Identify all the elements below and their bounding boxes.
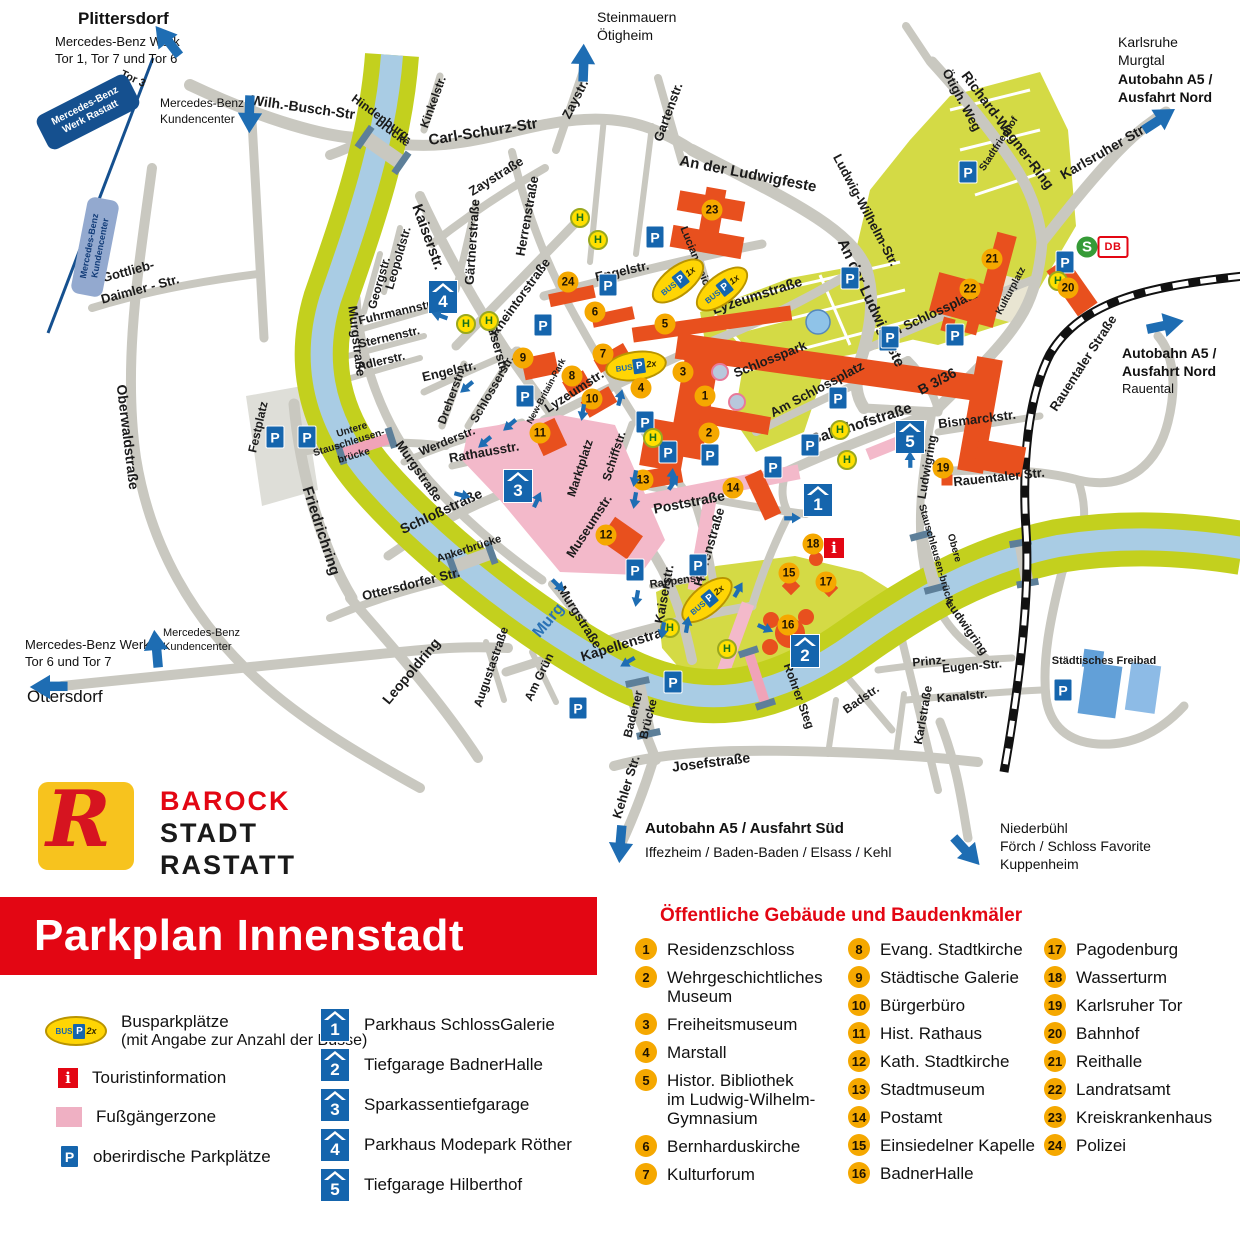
poi-label: Städtische Galerie	[880, 968, 1019, 987]
legend-busparkplaetze: BUS P 2x Busparkplätze (mit Angabe zur A…	[45, 1012, 367, 1050]
garage-legend-label: Tiefgarage BadnerHalle	[364, 1055, 543, 1075]
legend-fussgaengerzone: Fußgängerzone	[56, 1107, 216, 1127]
poi-marker: 21	[1044, 1050, 1066, 1072]
map-marker-17: 17	[816, 572, 837, 593]
poi-marker: 10	[848, 994, 870, 1016]
bus-stop-icon: H	[717, 639, 737, 659]
parking-garage-icon: 5	[895, 420, 925, 454]
map: Wilh.-Busch-StrCarl-Schurz-StrZaystr.Gar…	[0, 0, 1240, 890]
poi-marker: 3	[635, 1013, 657, 1035]
bus-stop-icon: H	[588, 230, 608, 250]
poi-marker: 20	[1044, 1022, 1066, 1044]
bus-stop-icon: H	[830, 420, 850, 440]
surface-parking-icon: P	[659, 441, 678, 464]
parking-garage-icon: 2	[790, 634, 820, 668]
surface-parking-icon: P	[534, 314, 553, 337]
map-marker-15: 15	[779, 563, 800, 584]
surface-parking-icon: P	[841, 267, 860, 290]
garage-legend-label: Parkhaus Modepark Röther	[364, 1135, 572, 1155]
surface-parking-icon: P	[569, 697, 588, 720]
surface-parking-icon: P	[298, 426, 317, 449]
poi-item-24: 24Polizei	[1044, 1136, 1126, 1156]
poi-label: Reithalle	[1076, 1052, 1142, 1071]
destination-label: Iffezheim / Baden-Baden / Elsass / Kehl	[645, 843, 891, 861]
poi-marker: 6	[635, 1135, 657, 1157]
poi-marker: 16	[848, 1162, 870, 1184]
db-icon: DB	[1098, 236, 1129, 258]
poi-marker: 8	[848, 938, 870, 960]
poi-marker: 12	[848, 1050, 870, 1072]
map-marker-24: 24	[558, 272, 579, 293]
poi-marker: 17	[1044, 938, 1066, 960]
poi-item-22: 22Landratsamt	[1044, 1080, 1171, 1100]
garage-legend-item-5: 5Tiefgarage Hilberthof	[320, 1168, 522, 1202]
title-band: Parkplan Innenstadt	[0, 897, 597, 975]
map-marker-3: 3	[673, 362, 694, 383]
parking-garage-icon: 3	[503, 469, 533, 503]
surface-parking-icon: P	[516, 385, 535, 408]
legend-ped-label: Fußgängerzone	[96, 1107, 216, 1127]
surface-parking-icon: P	[626, 559, 645, 582]
poi-item-8: 8Evang. Stadtkirche	[848, 940, 1023, 960]
poi-item-7: 7Kulturforum	[635, 1165, 755, 1185]
poi-marker: 15	[848, 1134, 870, 1156]
destination-label: Rauental	[1122, 381, 1174, 398]
bus-stop-icon: H	[456, 314, 476, 334]
pedestrian-zone-swatch	[56, 1107, 82, 1127]
poi-label: Landratsamt	[1076, 1080, 1171, 1099]
surface-parking-icon: P	[764, 456, 783, 479]
tourist-info-icon: i	[824, 538, 844, 558]
street-label: Städtisches Freibad	[1052, 655, 1157, 667]
poi-label: Bernharduskirche	[667, 1137, 800, 1156]
garage-legend-label: Parkhaus SchlossGalerie	[364, 1015, 555, 1035]
poi-label: Kreiskrankenhaus	[1076, 1108, 1212, 1127]
poi-marker: 19	[1044, 994, 1066, 1016]
surface-parking-icon: P	[60, 1145, 79, 1168]
garage-legend-item-2: 2Tiefgarage BadnerHalle	[320, 1048, 543, 1082]
logo-line-rastatt: RASTATT	[160, 852, 296, 879]
poi-item-4: 4Marstall	[635, 1043, 727, 1063]
poi-marker: 11	[848, 1022, 870, 1044]
map-marker-6: 6	[585, 302, 606, 323]
poi-item-13: 13Stadtmuseum	[848, 1080, 985, 1100]
poi-marker: 2	[635, 966, 657, 988]
poi-marker: 14	[848, 1106, 870, 1128]
poi-marker: 23	[1044, 1106, 1066, 1128]
poi-item-17: 17Pagodenburg	[1044, 940, 1178, 960]
map-marker-22: 22	[960, 279, 981, 300]
poi-item-23: 23Kreiskrankenhaus	[1044, 1108, 1212, 1128]
poi-item-6: 6Bernharduskirche	[635, 1137, 800, 1157]
poi-item-18: 18Wasserturm	[1044, 968, 1167, 988]
map-marker-5: 5	[655, 314, 676, 335]
garage-legend-item-4: 4Parkhaus Modepark Röther	[320, 1128, 572, 1162]
legend-info-label: Touristinformation	[92, 1068, 226, 1088]
destination-label: Mercedes-Benz Kundencenter	[160, 96, 244, 127]
map-marker-16: 16	[778, 615, 799, 636]
surface-parking-icon: P	[1054, 679, 1073, 702]
poi-label: Wasserturm	[1076, 968, 1167, 987]
poi-label: Hist. Rathaus	[880, 1024, 982, 1043]
poi-item-1: 1Residenzschloss	[635, 940, 795, 960]
map-marker-20: 20	[1058, 278, 1079, 299]
surface-parking-icon: P	[959, 161, 978, 184]
poi-label: Bürgerbüro	[880, 996, 965, 1015]
surface-parking-icon: P	[829, 387, 848, 410]
poi-item-12: 12Kath. Stadtkirche	[848, 1052, 1009, 1072]
poi-item-20: 20Bahnhof	[1044, 1024, 1139, 1044]
bus-stop-icon: H	[570, 208, 590, 228]
garage-legend-label: Sparkassentiefgarage	[364, 1095, 529, 1115]
poi-marker: 18	[1044, 966, 1066, 988]
poi-label: Kath. Stadtkirche	[880, 1052, 1009, 1071]
destination-label: Steinmauern Ötigheim	[597, 8, 676, 44]
poi-marker: 22	[1044, 1078, 1066, 1100]
poi-label: Pagodenburg	[1076, 940, 1178, 959]
map-marker-2: 2	[699, 423, 720, 444]
surface-parking-icon: P	[689, 554, 708, 577]
poi-label: Karlsruher Tor	[1076, 996, 1182, 1015]
sbahn-icon: S	[1077, 237, 1098, 258]
logo-line-stadt: STADT	[160, 820, 296, 847]
map-marker-23: 23	[702, 200, 723, 221]
barock-stadt-rastatt-logo: R BAROCK STADT RASTATT	[38, 782, 378, 872]
poi-label: Bahnhof	[1076, 1024, 1139, 1043]
poi-item-10: 10Bürgerbüro	[848, 996, 965, 1016]
destination-label: Mercedes-Benz Werk Tor 6 und Tor 7	[25, 637, 150, 671]
map-marker-21: 21	[982, 249, 1003, 270]
poi-marker: 13	[848, 1078, 870, 1100]
surface-parking-icon: P	[946, 324, 965, 347]
poi-label: Kulturforum	[667, 1165, 755, 1184]
destination-label: Autobahn A5 / Ausfahrt Süd	[645, 819, 844, 839]
poi-item-19: 19Karlsruher Tor	[1044, 996, 1182, 1016]
poi-item-16: 16BadnerHalle	[848, 1164, 974, 1184]
bus-count: 2x	[646, 358, 657, 369]
map-marker-11: 11	[530, 423, 551, 444]
poi-marker: 9	[848, 966, 870, 988]
parking-garage-icon: 2	[320, 1048, 350, 1082]
poi-marker: 5	[635, 1069, 657, 1091]
poi-item-5: 5Histor. Bibliothek im Ludwig-Wilhelm- G…	[635, 1071, 815, 1128]
map-marker-1: 1	[695, 386, 716, 407]
poi-marker: 24	[1044, 1134, 1066, 1156]
surface-parking-icon: P	[646, 226, 665, 249]
poi-label: Residenzschloss	[667, 940, 795, 959]
parkplan-poster: Wilh.-Busch-StrCarl-Schurz-StrZaystr.Gar…	[0, 0, 1240, 1240]
surface-parking-icon: P	[701, 444, 720, 467]
parking-garage-icon: 1	[803, 483, 833, 517]
destination-label: Autobahn A5 / Ausfahrt Nord	[1122, 344, 1216, 380]
parking-garage-icon: 4	[320, 1128, 350, 1162]
poi-label: Stadtmuseum	[880, 1080, 985, 1099]
tourist-info-icon: i	[58, 1068, 78, 1088]
poi-header: Öffentliche Gebäude und Baudenkmäler	[660, 905, 1022, 927]
map-marker-14: 14	[723, 478, 744, 499]
bus-stop-icon: H	[479, 311, 499, 331]
poi-item-2: 2Wehrgeschichtliches Museum	[635, 968, 823, 1006]
surface-parking-icon: P	[266, 426, 285, 449]
poi-marker: 4	[635, 1041, 657, 1063]
garage-legend-label: Tiefgarage Hilberthof	[364, 1175, 522, 1195]
poi-label: Histor. Bibliothek im Ludwig-Wilhelm- Gy…	[667, 1071, 815, 1128]
bus-stop-icon: H	[643, 428, 663, 448]
poi-label: Wehrgeschichtliches Museum	[667, 968, 823, 1006]
parking-garage-icon: 1	[320, 1008, 350, 1042]
poi-label: Evang. Stadtkirche	[880, 940, 1023, 959]
bus-parking-icon: BUS P 2x	[45, 1016, 107, 1046]
poi-item-11: 11Hist. Rathaus	[848, 1024, 982, 1044]
bus-stop-icon: H	[837, 450, 857, 470]
map-marker-19: 19	[933, 458, 954, 479]
destination-label: Karlsruhe Murgtal	[1118, 33, 1178, 69]
page-title: Parkplan Innenstadt	[0, 897, 597, 961]
surface-parking-icon: P	[801, 434, 820, 457]
poi-label: Polizei	[1076, 1136, 1126, 1155]
legend-parkplaetze: P oberirdische Parkplätze	[60, 1145, 271, 1168]
legend-parking-label: oberirdische Parkplätze	[93, 1147, 271, 1167]
garage-legend-item-3: 3Sparkassentiefgarage	[320, 1088, 529, 1122]
surface-parking-icon: P	[881, 326, 900, 349]
map-marker-12: 12	[596, 525, 617, 546]
poi-marker: 7	[635, 1163, 657, 1185]
map-marker-9: 9	[513, 348, 534, 369]
map-marker-8: 8	[562, 366, 583, 387]
poi-item-9: 9Städtische Galerie	[848, 968, 1019, 988]
poi-item-21: 21Reithalle	[1044, 1052, 1142, 1072]
poi-label: Marstall	[667, 1043, 727, 1062]
logo-line-barock: BAROCK	[160, 788, 296, 815]
map-marker-4: 4	[631, 378, 652, 399]
poi-label: Postamt	[880, 1108, 942, 1127]
poi-marker: 1	[635, 938, 657, 960]
poi-label: BadnerHalle	[880, 1164, 974, 1183]
poi-label: Einsiedelner Kapelle	[880, 1136, 1035, 1155]
poi-item-3: 3Freiheitsmuseum	[635, 1015, 797, 1035]
map-marker-18: 18	[803, 534, 824, 555]
map-marker-7: 7	[593, 344, 614, 365]
poi-item-15: 15Einsiedelner Kapelle	[848, 1136, 1035, 1156]
parking-garage-icon: 5	[320, 1168, 350, 1202]
poi-label: Freiheitsmuseum	[667, 1015, 797, 1034]
parking-garage-icon: 3	[320, 1088, 350, 1122]
poi-item-14: 14Postamt	[848, 1108, 942, 1128]
surface-parking-icon: P	[664, 671, 683, 694]
garage-legend-item-1: 1Parkhaus SchlossGalerie	[320, 1008, 555, 1042]
destination-label: Niederbühl Förch / Schloss Favorite Kupp…	[1000, 819, 1151, 874]
destination-label: Mercedes-Benz Kundencenter	[163, 626, 240, 655]
bus-text: BUS	[615, 362, 633, 373]
surface-parking-icon: P	[599, 274, 618, 297]
legend-touristinfo: i Touristinformation	[58, 1068, 226, 1088]
logo-r-glyph: R	[46, 774, 111, 865]
